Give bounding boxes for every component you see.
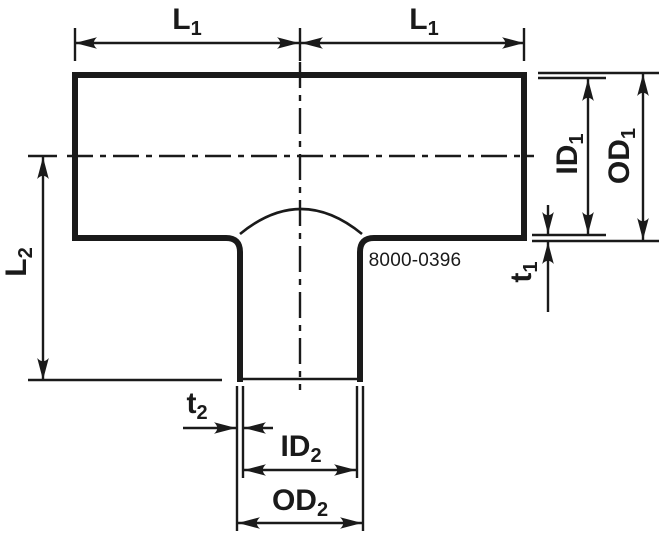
reducing-tee-drawing: L1 L1 L2 ID1 OD1 t1 t2 ID2 OD2 8000-0396 [0,0,659,542]
technical-drawing-page: L1 L1 L2 ID1 OD1 t1 t2 ID2 OD2 8000-0396 [0,0,659,542]
label-id2: ID2 [280,430,321,467]
label-l1-left: L1 [172,3,201,40]
part-number: 8000-0396 [369,250,462,271]
label-l2: L2 [0,247,37,276]
label-t2: t2 [186,387,207,424]
label-l1-right: L1 [409,3,438,40]
label-t1: t1 [505,261,542,282]
label-od1: OD1 [603,128,640,184]
label-id1: ID1 [551,133,588,174]
label-od2: OD2 [272,484,328,521]
tee-body-outline-left [75,238,240,379]
